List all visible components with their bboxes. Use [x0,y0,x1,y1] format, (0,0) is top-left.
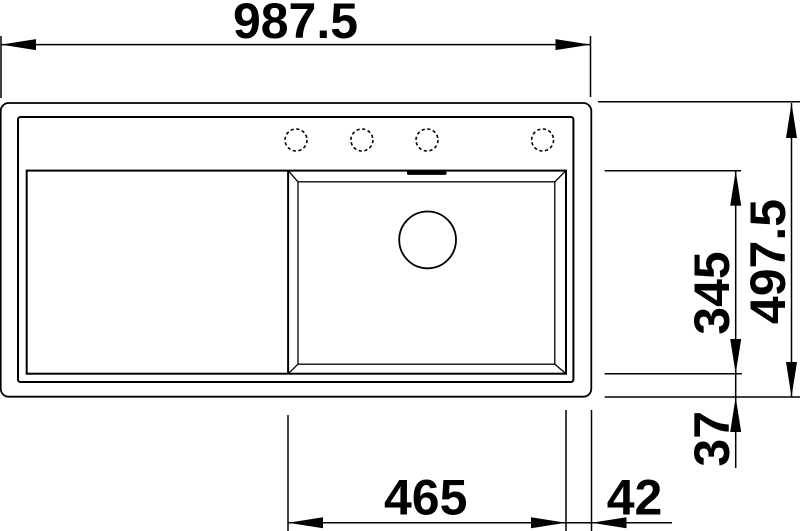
svg-text:42: 42 [607,470,663,526]
svg-text:465: 465 [384,470,467,526]
svg-text:987.5: 987.5 [233,0,358,49]
svg-text:497.5: 497.5 [740,199,796,324]
svg-text:345: 345 [684,251,740,334]
svg-text:37: 37 [684,411,740,467]
